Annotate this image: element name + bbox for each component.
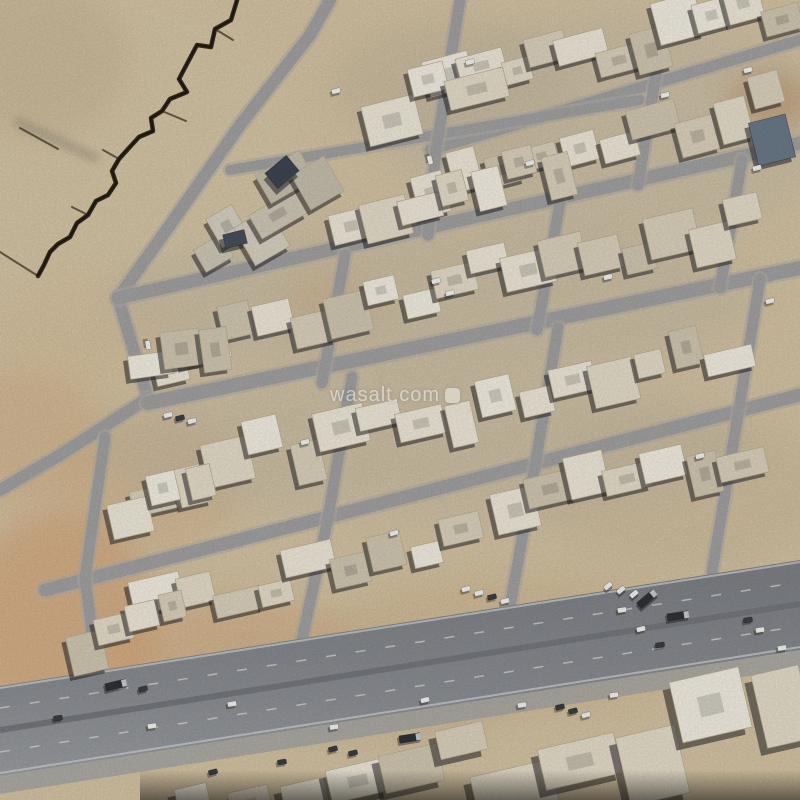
photo-grain-overlay [0, 0, 800, 800]
satellite-map-view: wasalt.com [0, 0, 800, 800]
aerial-imagery [0, 0, 800, 800]
